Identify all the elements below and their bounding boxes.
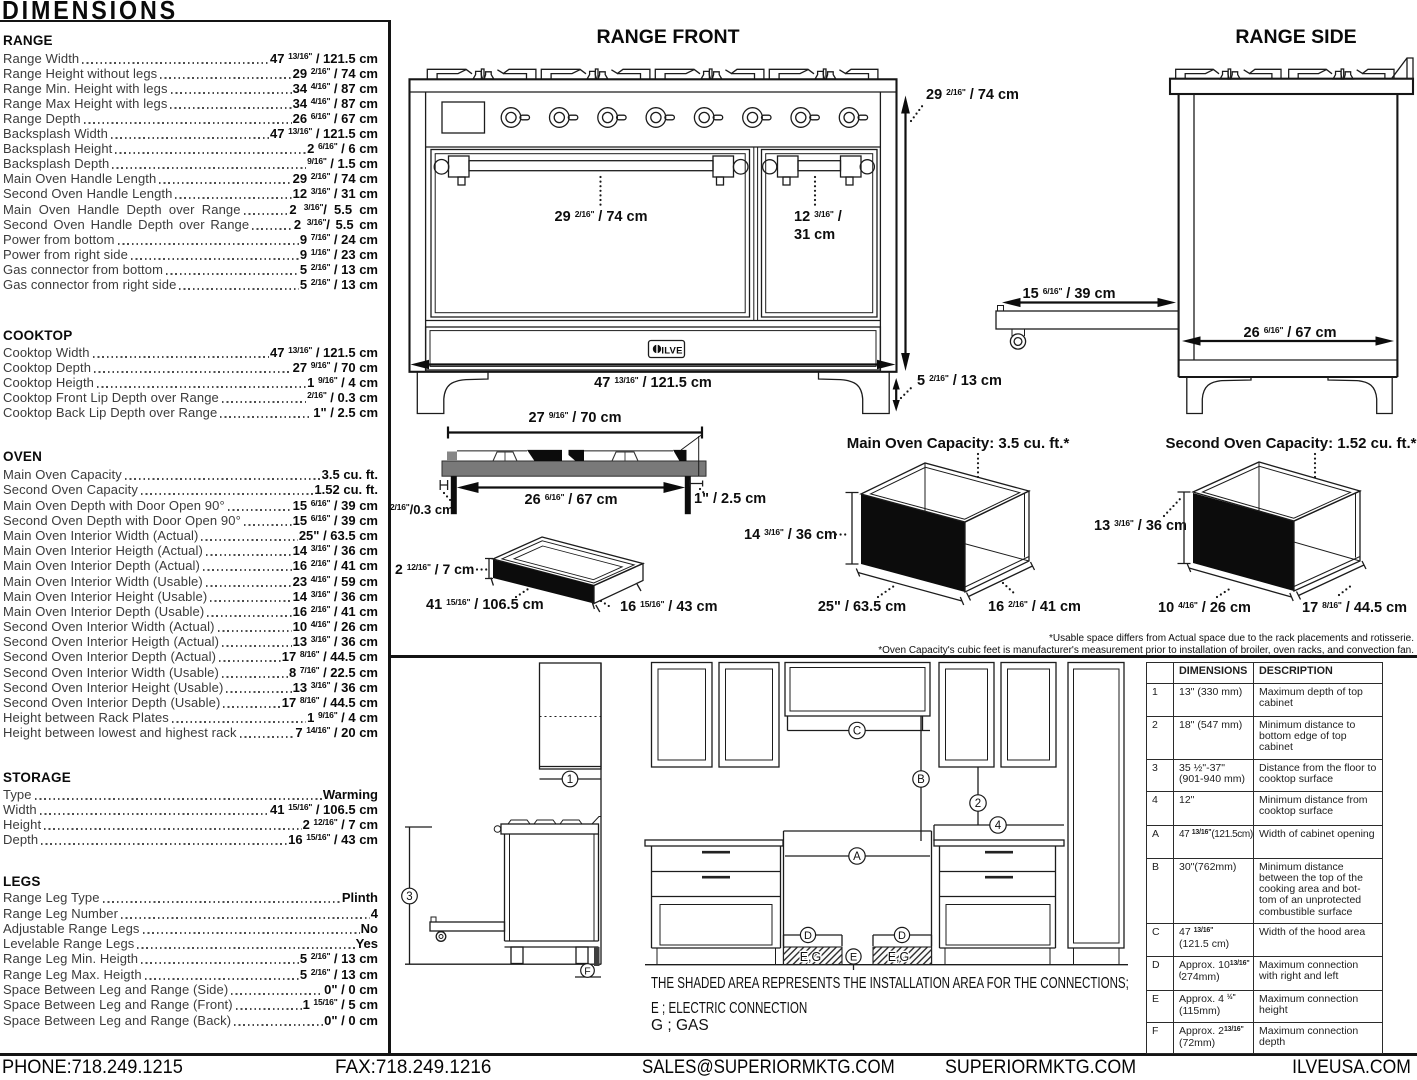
svg-text:4: 4 xyxy=(995,820,1002,832)
svg-text:E: E xyxy=(850,952,857,964)
svg-text:D: D xyxy=(804,930,812,942)
svg-text:2: 2 xyxy=(975,798,981,810)
svg-text:B: B xyxy=(917,774,925,786)
svg-text:3: 3 xyxy=(406,891,412,903)
svg-text:A: A xyxy=(853,851,861,863)
svg-text:1: 1 xyxy=(567,774,573,786)
svg-text:E,G: E,G xyxy=(888,950,910,964)
svg-text:ILVE: ILVE xyxy=(661,346,682,357)
svg-text:D: D xyxy=(898,930,906,942)
svg-text:E,G: E,G xyxy=(800,950,822,964)
svg-text:C: C xyxy=(853,726,861,738)
svg-text:F: F xyxy=(584,965,590,977)
